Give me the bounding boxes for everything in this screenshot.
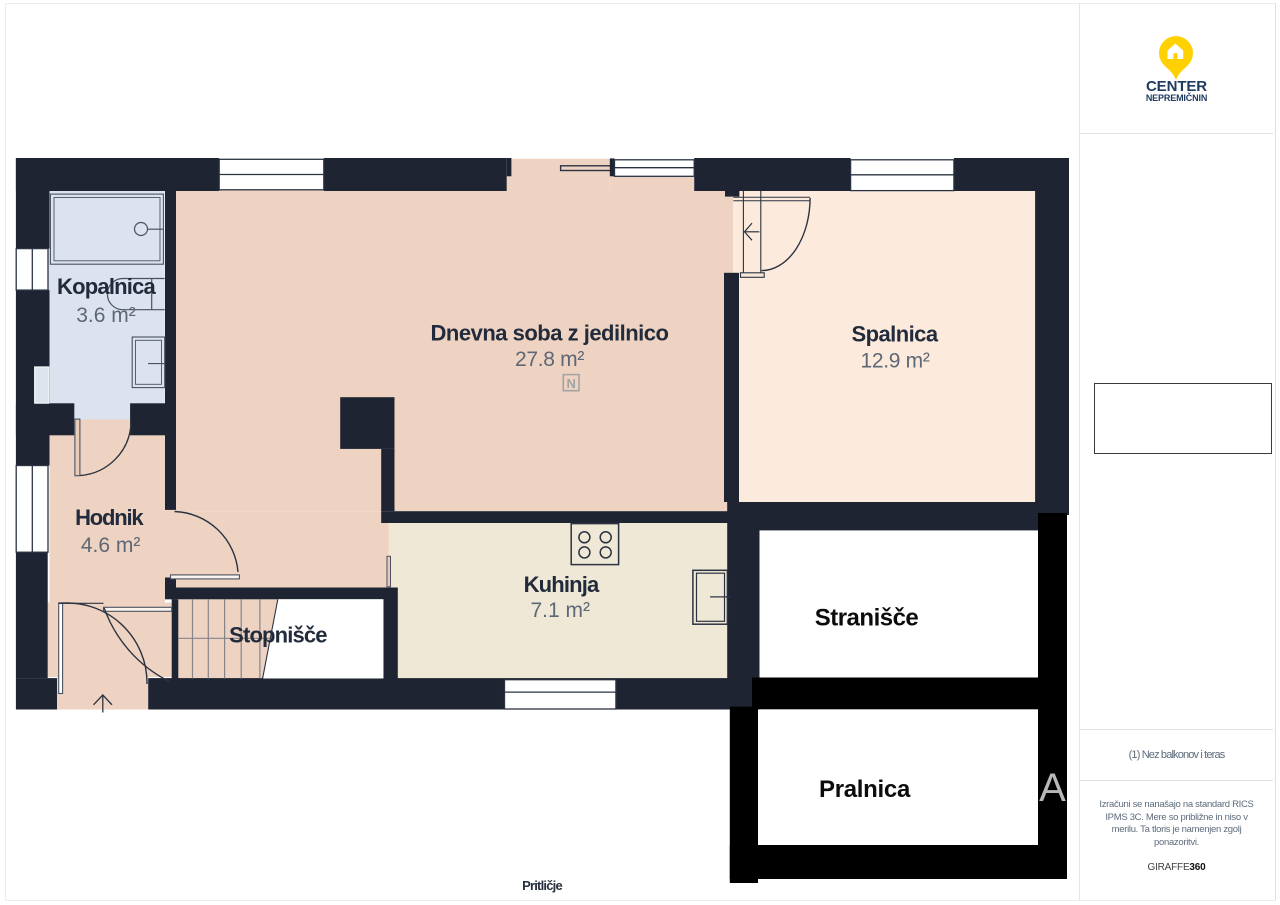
svg-text:Kuhinja: Kuhinja bbox=[524, 572, 600, 597]
svg-text:7.1 m²: 7.1 m² bbox=[530, 599, 590, 622]
svg-text:12.9 m²: 12.9 m² bbox=[860, 350, 929, 373]
svg-text:Stranišče: Stranišče bbox=[815, 605, 919, 632]
svg-text:4.6 m²: 4.6 m² bbox=[81, 534, 141, 557]
svg-text:27.8 m²: 27.8 m² bbox=[515, 348, 584, 371]
svg-text:N: N bbox=[567, 376, 576, 391]
svg-text:Dnevna soba z jedilnico: Dnevna soba z jedilnico bbox=[431, 321, 669, 346]
svg-text:Stopnišče: Stopnišče bbox=[229, 623, 327, 648]
svg-text:3.6 m²: 3.6 m² bbox=[76, 304, 136, 327]
svg-text:Spalnica: Spalnica bbox=[851, 322, 938, 347]
svg-text:Pralnica: Pralnica bbox=[819, 776, 911, 803]
svg-text:Hodnik: Hodnik bbox=[75, 505, 144, 530]
svg-text:Kopalnica: Kopalnica bbox=[57, 274, 156, 299]
